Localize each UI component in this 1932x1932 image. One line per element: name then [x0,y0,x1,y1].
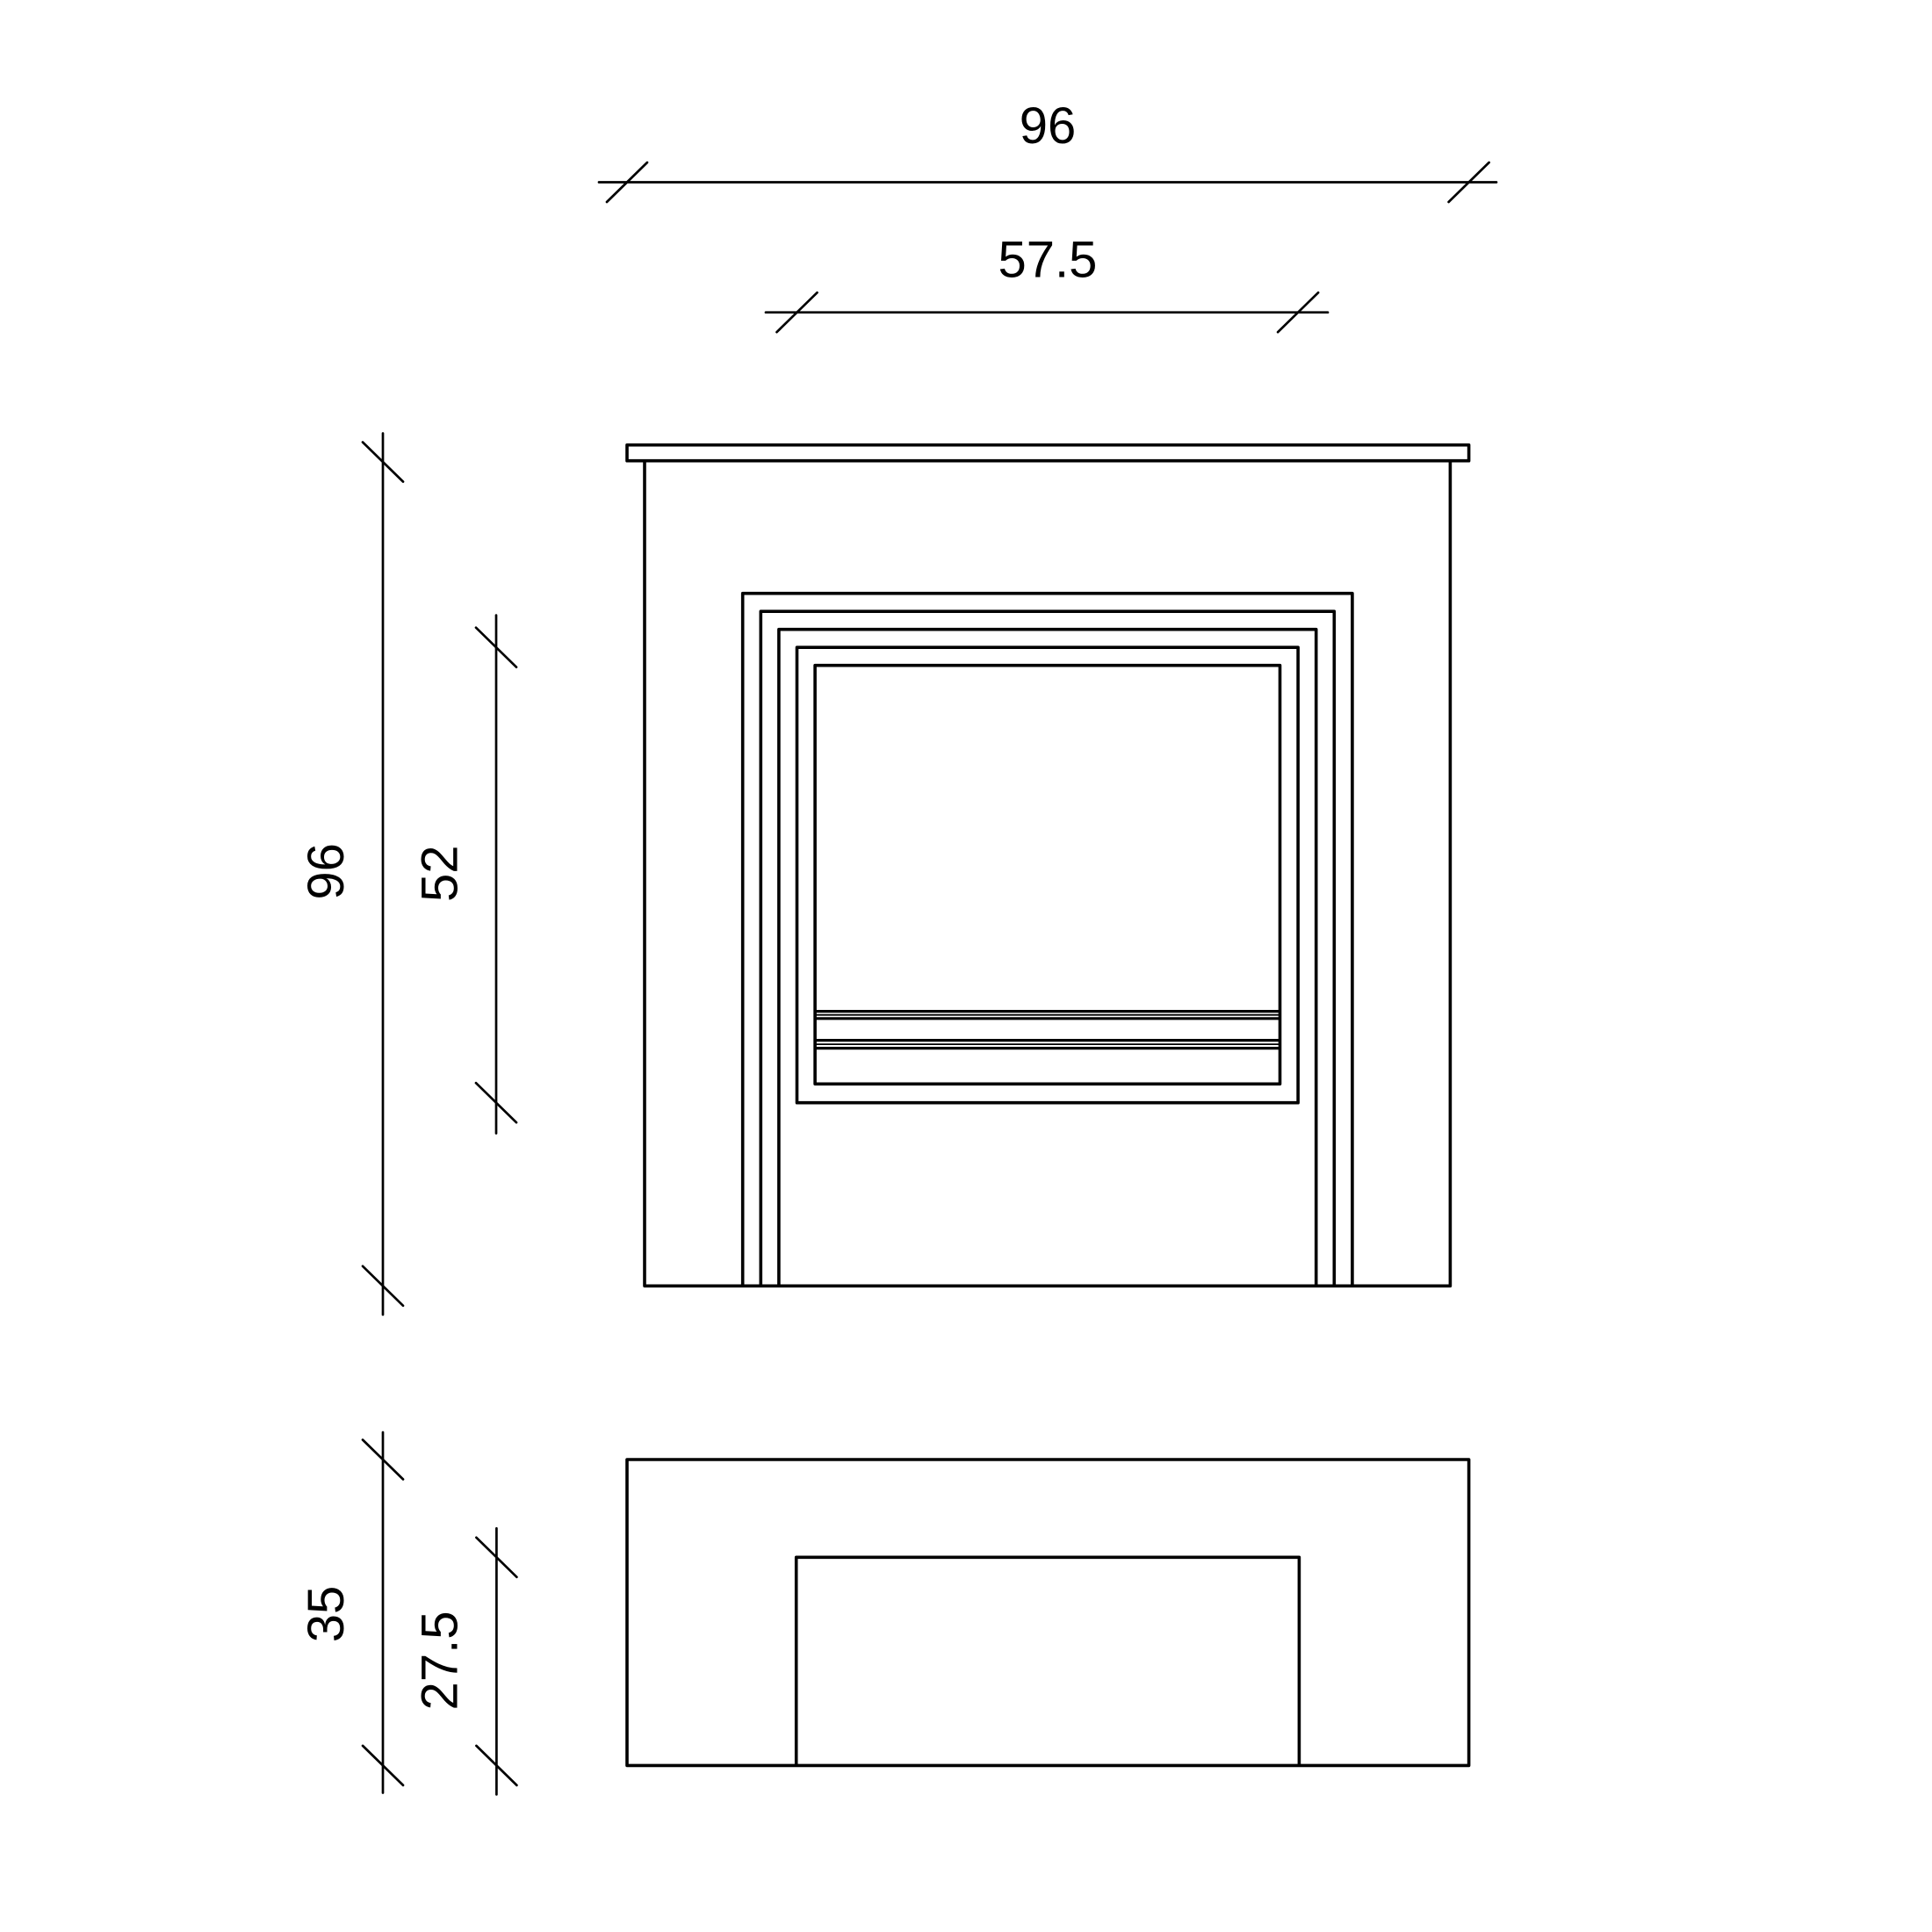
svg-text:52: 52 [411,845,468,902]
svg-text:57.5: 57.5 [998,232,1098,289]
svg-text:35: 35 [298,1586,355,1643]
svg-text:96: 96 [298,843,355,900]
svg-text:27.5: 27.5 [411,1611,468,1711]
svg-text:96: 96 [1020,97,1077,155]
